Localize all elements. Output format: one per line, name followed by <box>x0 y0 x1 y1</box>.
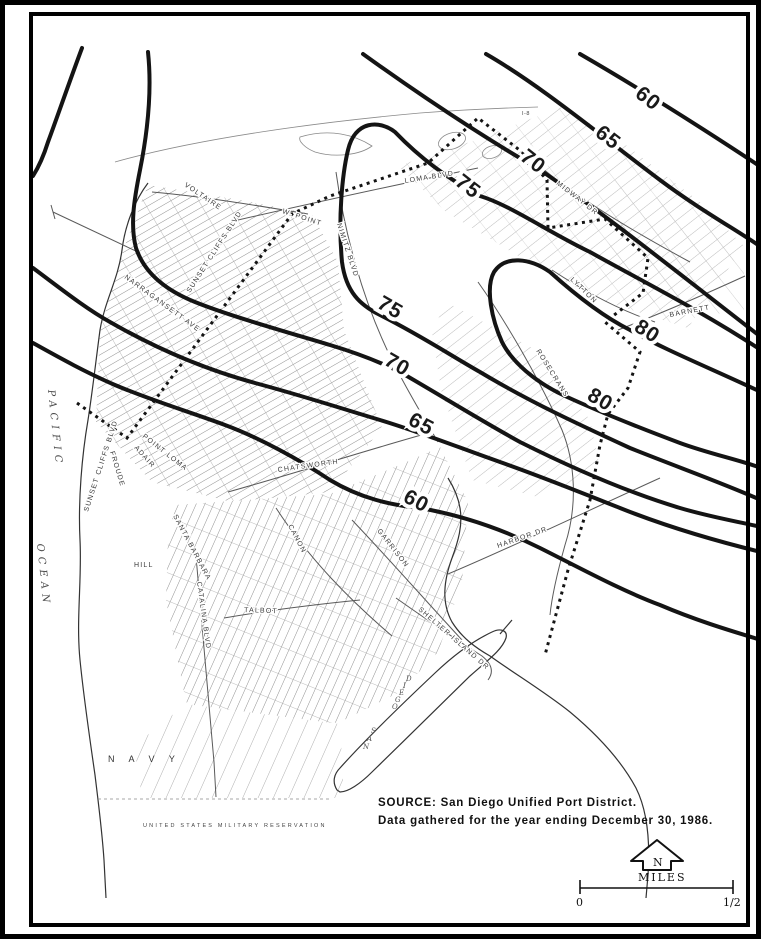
bay-letter: S <box>371 727 376 735</box>
bay-letter: D <box>405 675 412 683</box>
navy-label: N A V Y <box>108 754 181 764</box>
map-legend: N MILES 0 1/2 <box>576 840 741 909</box>
military-reservation-label: UNITED STATES MILITARY RESERVATION <box>143 823 327 829</box>
map-canvas: 60 65 70 75 80 80 75 70 65 60 VOLTAIRE S… <box>0 0 761 939</box>
source-line-2: Data gathered for the year ending Decemb… <box>378 815 713 827</box>
shelter-island-causeway <box>500 620 512 634</box>
contour-label-65s: 65 <box>405 408 438 440</box>
street-label-froude: FROUDE <box>108 451 125 488</box>
contour-label-80b: 80 <box>584 383 617 416</box>
scale-zero-label: 0 <box>576 896 583 909</box>
contour-west-arc <box>33 48 82 176</box>
bay-letter: A <box>366 735 372 743</box>
pacific-label: PACIFIC <box>45 388 64 468</box>
source-note: SOURCE: San Diego Unified Port District.… <box>378 797 713 827</box>
bay-shoreline <box>445 558 649 898</box>
source-line-1: SOURCE: San Diego Unified Port District. <box>378 797 637 809</box>
street-label-hill: HILL <box>134 562 154 569</box>
noise-contour-map-page: 60 65 70 75 80 80 75 70 65 60 VOLTAIRE S… <box>0 0 761 939</box>
street-label-talbot: TALBOT <box>244 607 278 615</box>
freeway-label-i8: I-8 <box>522 111 530 117</box>
river-channel <box>300 133 372 155</box>
scale-half-label: 1/2 <box>723 896 741 909</box>
ocean-label: OCEAN <box>34 543 52 608</box>
scale-units-label: MILES <box>638 871 686 884</box>
road-harbor-dr <box>448 478 660 574</box>
north-letter: N <box>653 856 663 869</box>
contour-label-75s: 75 <box>374 291 407 324</box>
bay-letter: N <box>362 743 370 751</box>
bay-letter: O <box>392 703 398 711</box>
